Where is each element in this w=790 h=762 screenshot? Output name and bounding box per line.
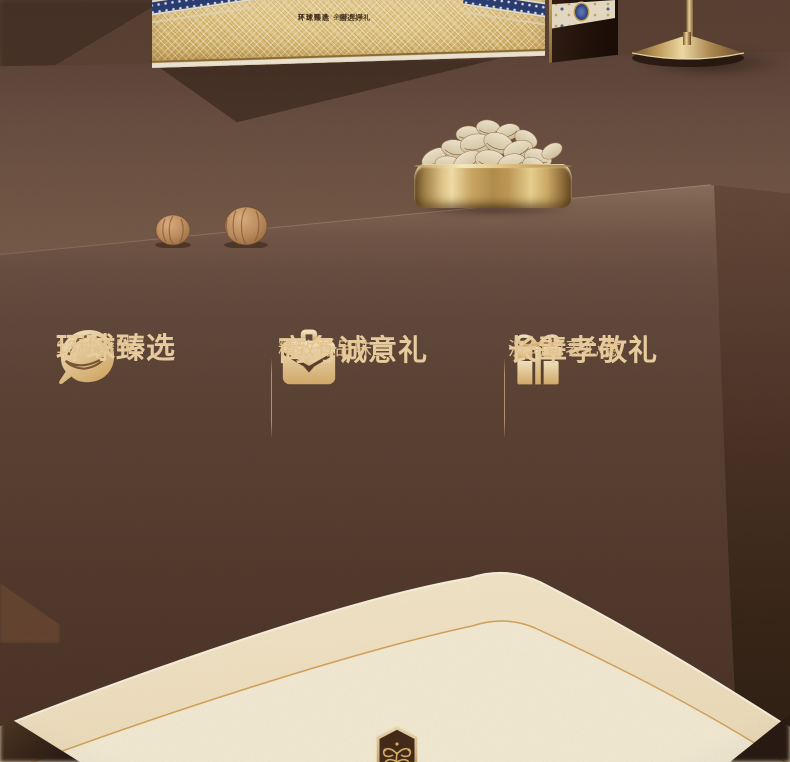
bowl-shadow <box>408 204 578 216</box>
promo-scene: 环球甄选 全球风味 环球臻选 · 甄选好礼 <box>0 0 790 762</box>
dark-gift-box <box>549 0 618 63</box>
pistachios <box>416 118 570 170</box>
column-divider <box>504 359 505 437</box>
lamp-disc <box>626 32 750 74</box>
column-divider <box>271 359 272 437</box>
pistachio-bowl <box>414 118 572 216</box>
feature-subtitle: 13种美味 <box>56 333 135 359</box>
cream-gift-box <box>0 560 790 762</box>
blue-medallion <box>575 4 588 20</box>
gold-box-print-line2: 环球臻选 · 甄选好礼 <box>298 13 371 23</box>
feature-subtitle: 精致有品味 <box>278 335 373 361</box>
walnuts <box>146 200 276 248</box>
brass-bowl <box>414 164 572 208</box>
dark-box-gold-edge <box>549 0 552 63</box>
feature-subtitle: 沉甸甸表心意 <box>508 335 622 361</box>
